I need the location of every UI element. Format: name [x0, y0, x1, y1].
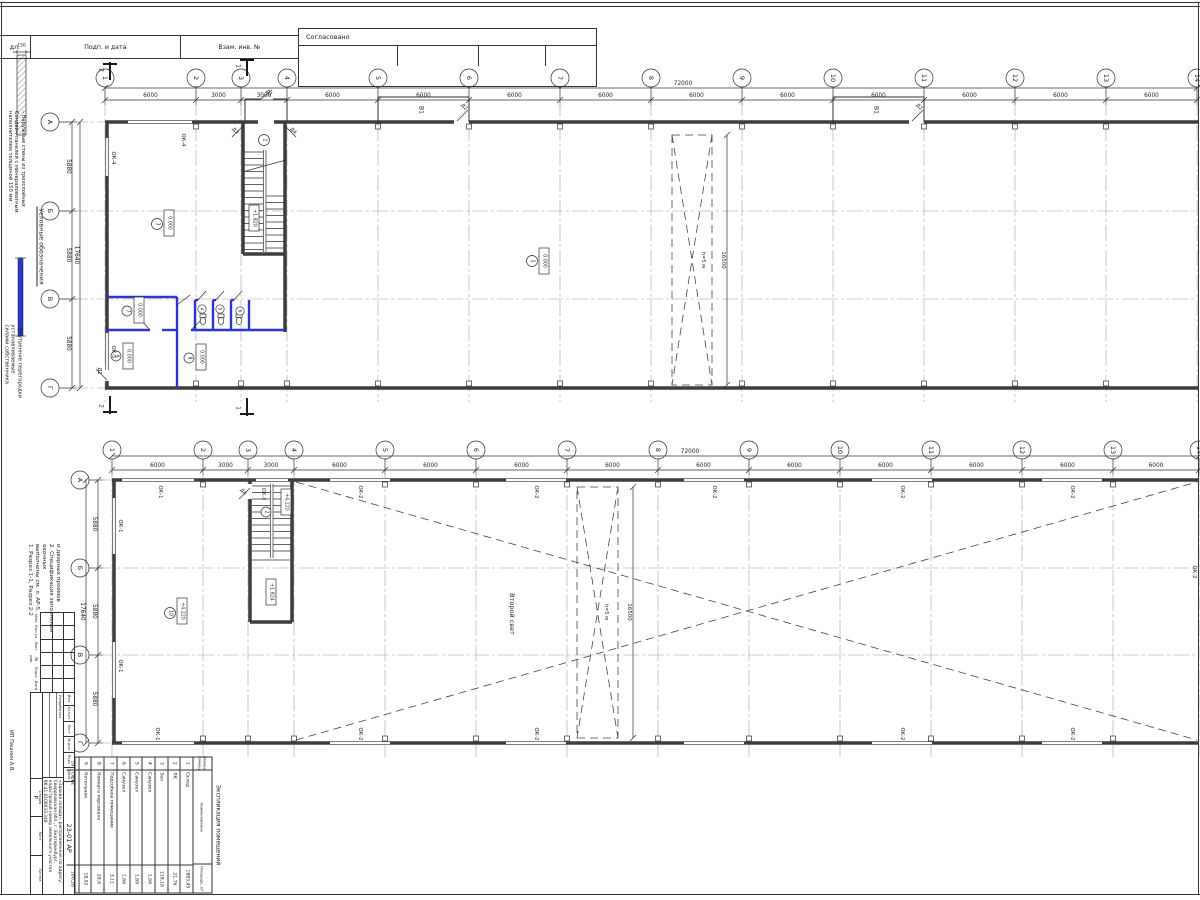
- axis-number: 4: [283, 76, 291, 80]
- column: [929, 482, 934, 487]
- dim-label: 6000: [1060, 463, 1075, 469]
- column: [201, 736, 206, 741]
- dim-label: 6000: [332, 463, 347, 469]
- header-cell: Номер помещ.: [193, 758, 211, 771]
- legend-item-outer-walls: - Наружные стены из трехслойных Сэндвич-…: [6, 111, 26, 241]
- level-mark: +4.220: [284, 493, 290, 511]
- frame-bottom-line: [0, 894, 1200, 895]
- plan2-walls: [112, 478, 1199, 745]
- axis-number: 1: [101, 76, 109, 80]
- door-label: Д3: [230, 126, 239, 135]
- dim-total: 17640: [73, 246, 79, 265]
- door-label: Д2: [914, 102, 923, 111]
- room-schedule-cell: 8: [92, 758, 104, 771]
- rev-header: Кол.уч.: [31, 625, 39, 639]
- axis-number: 1: [108, 448, 116, 452]
- column: [239, 381, 244, 386]
- approved-cell: [479, 46, 545, 66]
- rev-header: № док.: [64, 737, 74, 754]
- dim-label: 6000: [423, 463, 438, 469]
- axis-number: 13: [1109, 446, 1117, 454]
- toilet-icon: [218, 314, 224, 318]
- room-number: 8: [187, 356, 193, 359]
- stage-value: Р: [32, 779, 38, 816]
- column: [1104, 381, 1109, 386]
- room-schedule-cell: 2: [168, 758, 180, 771]
- room-schedule-cell: 1,66: [117, 865, 129, 892]
- plan2-room-marks: 10+4.220: [165, 598, 188, 624]
- window-label: ОК-3: [260, 488, 266, 500]
- level-mark: 0.000: [542, 254, 548, 268]
- section-number: 1: [235, 406, 242, 410]
- brace-note: h=5 м: [603, 604, 609, 620]
- title-block-bottom-row: Стадия Р Лист Листов: [31, 693, 42, 894]
- axis-letter: Б: [76, 566, 84, 570]
- vestibule-label: В1: [873, 106, 880, 114]
- frame-left-line: [1, 2, 2, 895]
- plan2-brace: 16500h=5 м: [577, 484, 636, 741]
- column: [747, 482, 752, 487]
- legend-line: - Наружные стены из трехслойных: [20, 111, 27, 241]
- project-name: «Здание склада», расположенное по адресу…: [43, 778, 63, 894]
- legend-item-partitions: - Внутренние перегородки устанавливаемые…: [10, 325, 23, 445]
- dim-label: 5880: [65, 159, 71, 174]
- room-schedule-row: 7Подсобное помещение3,11: [103, 758, 116, 893]
- window-label: ОК-2: [899, 486, 905, 499]
- dim-label: 6000: [780, 93, 795, 99]
- door-label: Д4: [238, 487, 247, 496]
- column: [474, 736, 479, 741]
- stamp-strip: дл. Подп. и дата Взам. инв. №: [0, 35, 298, 59]
- revision-grid-line: [63, 613, 64, 693]
- door-opening: [258, 119, 274, 125]
- dim-label: 6000: [416, 93, 431, 99]
- legend-title: Условные обозначения: [34, 204, 45, 290]
- axis-letter: В: [46, 297, 54, 301]
- section-number: 1: [235, 64, 242, 68]
- room-schedule-cell: 160,26: [66, 865, 78, 892]
- window-label: ОК-4: [180, 134, 186, 148]
- column: [565, 482, 570, 487]
- column: [1020, 482, 1025, 487]
- revision-row: [41, 679, 74, 691]
- title-block-signatures: Разработал: [43, 693, 63, 778]
- column: [1013, 381, 1018, 386]
- rev-header: № док.: [31, 653, 39, 666]
- column: [656, 482, 661, 487]
- column: [383, 736, 388, 741]
- brace-note: h=5 м: [700, 252, 706, 268]
- drawing-sheet: 1501234567891011121314600030003000600060…: [0, 0, 1200, 900]
- vestibule-label: В1: [418, 106, 425, 114]
- room-schedule-cell: 3: [155, 758, 167, 771]
- room-schedule-cell: Комната персонала: [92, 770, 104, 865]
- rev-header: Изм.: [31, 612, 39, 625]
- column: [558, 124, 563, 129]
- revision-row: [41, 640, 74, 653]
- legend-line: Сэндвич-панелей с минераловатным: [13, 111, 20, 241]
- line: [198, 291, 206, 300]
- axis-number: 9: [738, 76, 746, 80]
- window-label: ОК-2: [711, 486, 717, 499]
- window-label: ОК-5: [110, 346, 116, 359]
- rev-header: Изм.: [64, 693, 74, 706]
- level-mark: +4.220: [180, 602, 186, 620]
- title-block-empty: [31, 693, 42, 779]
- column: [467, 124, 472, 129]
- dim-label: 6000: [325, 93, 340, 99]
- level-mark: 0.000: [167, 216, 173, 230]
- axis-number: 12: [1011, 74, 1019, 82]
- revision-row: [41, 666, 74, 679]
- dim-label: 6000: [696, 463, 711, 469]
- room-schedule-cell: 6: [117, 758, 129, 771]
- column: [740, 381, 745, 386]
- column: [1111, 482, 1116, 487]
- window-label: ОК-2: [899, 728, 905, 741]
- room-schedule-title: Экспликация помещений: [212, 757, 224, 894]
- axis-letter: Г: [46, 386, 54, 390]
- room-schedule-cell: 9: [79, 758, 91, 771]
- column: [201, 482, 206, 487]
- window-label: ОК-2: [357, 486, 363, 499]
- column: [194, 124, 199, 129]
- window-label: ОК-1: [157, 486, 163, 499]
- column: [246, 736, 251, 741]
- stamp-cell-label: дл.: [10, 44, 20, 51]
- window-label: ОК-4: [110, 152, 116, 166]
- sheet-cell: Лист: [31, 817, 42, 855]
- room-schedule-cell: 5: [130, 758, 142, 771]
- column: [649, 381, 654, 386]
- rev-header: Подп.: [31, 666, 39, 679]
- column: [558, 381, 563, 386]
- column: [565, 736, 570, 741]
- developed-label: Разработал: [56, 693, 63, 777]
- axis-number: 9: [745, 448, 753, 452]
- dim-label: 5880: [91, 517, 97, 532]
- column: [1104, 124, 1109, 129]
- axis-letter: В: [76, 653, 84, 657]
- column: [838, 482, 843, 487]
- column: [740, 124, 745, 129]
- dim-label: 6000: [878, 463, 893, 469]
- rev-header: Дата: [31, 679, 39, 692]
- axis-letter: Г: [76, 741, 84, 745]
- column: [922, 124, 927, 129]
- dim-label: 6000: [1149, 463, 1164, 469]
- second-light-label: Второй свет: [508, 593, 516, 635]
- room-schedule-cell: 21,76: [168, 865, 180, 892]
- frame-top-line: [0, 2, 1200, 3]
- dim-label: 6000: [689, 93, 704, 99]
- room-schedule-cell: 18,92: [79, 865, 91, 892]
- column: [383, 482, 388, 487]
- column: [1013, 124, 1018, 129]
- toilet-icon: [200, 314, 206, 318]
- stamp-cell-sign: Подп. и дата: [31, 36, 181, 58]
- axis-number: 3: [244, 448, 252, 452]
- axis-letter: А: [46, 120, 54, 125]
- plan1-stair: Д3Д42+1.820: [230, 126, 297, 252]
- title-block-main-row: Разработал «Здание склада», расположенно…: [42, 693, 63, 894]
- column: [831, 381, 836, 386]
- door-label: Д2: [459, 102, 468, 111]
- dim-total: 72000: [681, 449, 700, 455]
- axis-number: 11: [920, 74, 928, 82]
- header-cell: Наименование: [193, 771, 211, 865]
- room-schedule-cell: Зал: [155, 770, 167, 865]
- legend-line: - Внутренние перегородки устанавливаемые: [10, 325, 23, 445]
- line: [216, 291, 224, 300]
- signature-row: [43, 693, 49, 777]
- dim-label: 16500: [626, 603, 632, 621]
- room-schedule-cell: 10: [66, 758, 78, 771]
- approved-cell: [299, 46, 398, 66]
- plan1-toilet-icons: [200, 314, 242, 325]
- axis-number: 5: [381, 448, 389, 452]
- axis-number: 8: [647, 76, 655, 80]
- room-number: 4: [200, 308, 205, 311]
- room-schedule-cell: 1883,45: [180, 865, 192, 892]
- dim-label: 6000: [1144, 93, 1159, 99]
- plan1-wall-labels: ОК-4ОК-4ОК-5Д2: [96, 134, 186, 380]
- door-label: Д4: [288, 126, 297, 135]
- toilet-icon: [200, 317, 206, 324]
- room-schedule-row: 3Зал118,16: [154, 758, 167, 893]
- axis-number: 7: [563, 448, 571, 452]
- sheets-label: Листов: [38, 868, 42, 881]
- dim-label: 6000: [150, 463, 165, 469]
- approved-box: Согласовано: [298, 28, 597, 87]
- dim-label: 6000: [605, 463, 620, 469]
- axis-number: 6: [472, 448, 480, 452]
- axis-letter: А: [76, 478, 84, 483]
- dim-label: 3000: [264, 463, 279, 469]
- revision-grid: [40, 612, 75, 694]
- room-schedule-cell: 1,66: [142, 865, 154, 892]
- room-schedule-table: Номер помещ. Наименование Площадь, м² 1С…: [74, 757, 212, 894]
- line: [577, 487, 618, 738]
- toilet-icon: [236, 317, 242, 324]
- line: [242, 160, 286, 172]
- plan1-brace: 16500h=5 м: [672, 132, 730, 388]
- revision-grid-line: [52, 613, 53, 693]
- column: [1020, 736, 1025, 741]
- window-label: ОК-1: [117, 520, 123, 533]
- dim-label: 5880: [91, 692, 97, 707]
- stamp-cell-podl: дл.: [0, 36, 31, 58]
- approved-cell: [398, 46, 479, 66]
- room-schedule-cell: 1,69: [130, 865, 142, 892]
- room-schedule-row: 2ЛК21,76: [167, 758, 180, 893]
- dim-label: 5880: [91, 604, 97, 619]
- window-label: ОК-2: [533, 728, 539, 741]
- dim-total: 17640: [79, 602, 85, 621]
- dim-label: 16500: [720, 251, 726, 269]
- column: [292, 736, 297, 741]
- room-schedule-row: 5Санузел1,69: [129, 758, 142, 893]
- axis-number: 2: [199, 448, 207, 452]
- room-schedule-cell: 28,6: [92, 865, 104, 892]
- frame-right-line: [1198, 2, 1199, 895]
- dim-label: 6000: [962, 93, 977, 99]
- legend-line: наполнителем толщиной 150 мм: [7, 111, 14, 241]
- sheet-label: Лист: [38, 831, 42, 840]
- room-schedule-header: Номер помещ. Наименование Площадь, м²: [192, 758, 211, 893]
- header-cell: Площадь, м²: [193, 865, 211, 893]
- section-number: 2: [98, 404, 105, 408]
- rev-header: Лист: [31, 639, 39, 652]
- room-number: 6: [238, 310, 243, 313]
- room-schedule-cell: Подсобное помещение: [104, 770, 116, 865]
- room-schedule-cell: Санузел: [117, 770, 129, 865]
- room-number: 3: [155, 222, 161, 225]
- column: [194, 381, 199, 386]
- room-schedule-cell: 3,11: [104, 865, 116, 892]
- company-name: ИП Пашнин А.В.: [8, 730, 14, 772]
- dim-label: 5880: [65, 336, 71, 351]
- room-number: 2: [262, 138, 268, 141]
- room-number: 5: [218, 308, 223, 311]
- dim-label: 6000: [143, 93, 158, 99]
- legend-title-text: Условные обозначения: [37, 206, 45, 286]
- column: [467, 381, 472, 386]
- frame-top-line2: [0, 6, 1200, 7]
- room-schedule-cell: Санузел: [142, 770, 154, 865]
- toilet-icon: [218, 317, 224, 324]
- room-schedule-row: 9Котельная18,92: [78, 758, 91, 893]
- rev-header: Кол.уч.: [64, 706, 74, 723]
- dim-label: 5880: [65, 248, 71, 263]
- column: [747, 736, 752, 741]
- revision-row: [41, 653, 74, 666]
- column: [376, 381, 381, 386]
- axis-letter: Б: [46, 209, 54, 213]
- stamp-cell-label: Подп. и дата: [84, 44, 126, 51]
- stamp-cell-inv: Взам. инв. №: [181, 36, 298, 58]
- dim-label: 6000: [969, 463, 984, 469]
- room-schedule-cell: 118,16: [155, 865, 167, 892]
- window-label: ОК-2: [1191, 566, 1197, 579]
- column: [929, 736, 934, 741]
- room-schedule-cell: Санузел: [130, 770, 142, 865]
- window-label: ОК-1: [154, 728, 160, 741]
- axis-number: 11: [927, 446, 935, 454]
- room-schedule-cell: 1: [180, 758, 192, 771]
- room-schedule-cell: ЛК: [168, 770, 180, 865]
- column: [1111, 736, 1116, 741]
- stage-cell: Стадия Р: [31, 779, 42, 817]
- room-schedule-row: 10Офис160,26: [66, 758, 78, 893]
- window-label: ОК-2: [357, 728, 363, 741]
- dim-label: 6000: [507, 93, 522, 99]
- room-schedule-cell: 4: [142, 758, 154, 771]
- rev-header: Лист: [64, 722, 74, 737]
- axis-number: 3: [237, 76, 245, 80]
- approved-row: [299, 45, 596, 66]
- column: [649, 124, 654, 129]
- column: [838, 736, 843, 741]
- dim-label: 6000: [871, 93, 886, 99]
- room-number: 7: [125, 309, 131, 312]
- dim-label: 3000: [218, 463, 233, 469]
- plan2-wall-labels: ОК-1ОК-1ОК-1ОК-1ОК-2ОК-2ОК-2ОК-2ОК-2ОК-2…: [117, 486, 1197, 741]
- door-label: Д2: [96, 367, 102, 374]
- axis-number: 8: [654, 448, 662, 452]
- window-label: ОК-2: [533, 486, 539, 499]
- column: [656, 736, 661, 741]
- axis-number: 10: [829, 74, 837, 82]
- section-number: 2: [98, 68, 105, 72]
- room-number: 1: [530, 259, 536, 262]
- company-margin: ИП Пашнин А.В.: [6, 730, 16, 790]
- level-mark: +1.824: [269, 583, 275, 601]
- room-schedule-cell: 7: [104, 758, 116, 771]
- level-mark: 0.000: [199, 350, 205, 364]
- level-mark: 0.000: [126, 349, 132, 363]
- signature-row: [49, 693, 56, 777]
- window-label: ОК-2: [1069, 728, 1075, 741]
- column: [831, 124, 836, 129]
- braced-bay: [577, 487, 618, 738]
- window-label: ОК-2: [1069, 486, 1075, 499]
- dim-label: 3000: [211, 93, 226, 99]
- plan2-stair: Д4ОК-3+4.2202+1.824: [238, 484, 291, 605]
- dim-total: 72000: [674, 81, 693, 87]
- room-schedule: Экспликация помещений Номер помещ. Наиме…: [74, 757, 224, 894]
- room-schedule-row: 4Санузел1,66: [141, 758, 154, 893]
- room-schedule-row: 1Склад1883,45: [179, 758, 192, 893]
- level-mark: 0.000: [137, 303, 143, 317]
- sheets-cell: Листов: [31, 856, 42, 894]
- axis-number: 12: [1018, 446, 1026, 454]
- stamp-cell-label: Взам. инв. №: [218, 44, 260, 51]
- column: [922, 381, 927, 386]
- revision-row: [41, 626, 74, 639]
- dim-label: 6000: [514, 463, 529, 469]
- legend-line: силами собственника: [3, 325, 10, 445]
- plan2-second-light: Второй свет: [296, 482, 1197, 740]
- room-schedule-cell: Офис: [66, 770, 78, 865]
- column: [376, 124, 381, 129]
- room-schedule-cell: Котельная: [79, 770, 91, 865]
- plan1-walls: [104, 119, 1199, 388]
- window-label: ОК-1: [117, 660, 123, 673]
- line: [577, 487, 618, 738]
- plan1-section-marks: 2211: [98, 58, 255, 416]
- line: [177, 295, 190, 305]
- dim-label: 6000: [598, 93, 613, 99]
- column: [285, 381, 290, 386]
- axis-number: 4: [290, 448, 298, 452]
- column: [474, 482, 479, 487]
- axis-number: 13: [1102, 74, 1110, 82]
- plan1-entrances: Д1Д2В1Д2В1: [245, 88, 924, 122]
- revision-row: [41, 613, 74, 626]
- plan1-grid: 1234567891011121314600030003000600060006…: [41, 69, 1200, 402]
- stage-label: Стадия: [38, 791, 42, 805]
- dim-label: 6000: [787, 463, 802, 469]
- room-number: 2: [264, 510, 270, 513]
- axis-number: 10: [836, 446, 844, 454]
- approved-label: Согласовано: [299, 29, 596, 45]
- level-mark: +1.820: [252, 209, 258, 227]
- dim-label: 6000: [1053, 93, 1068, 99]
- room-schedule-cell: Склад: [180, 770, 192, 865]
- room-schedule-row: 6Санузел1,66: [116, 758, 129, 893]
- axis-number: 2: [192, 76, 200, 80]
